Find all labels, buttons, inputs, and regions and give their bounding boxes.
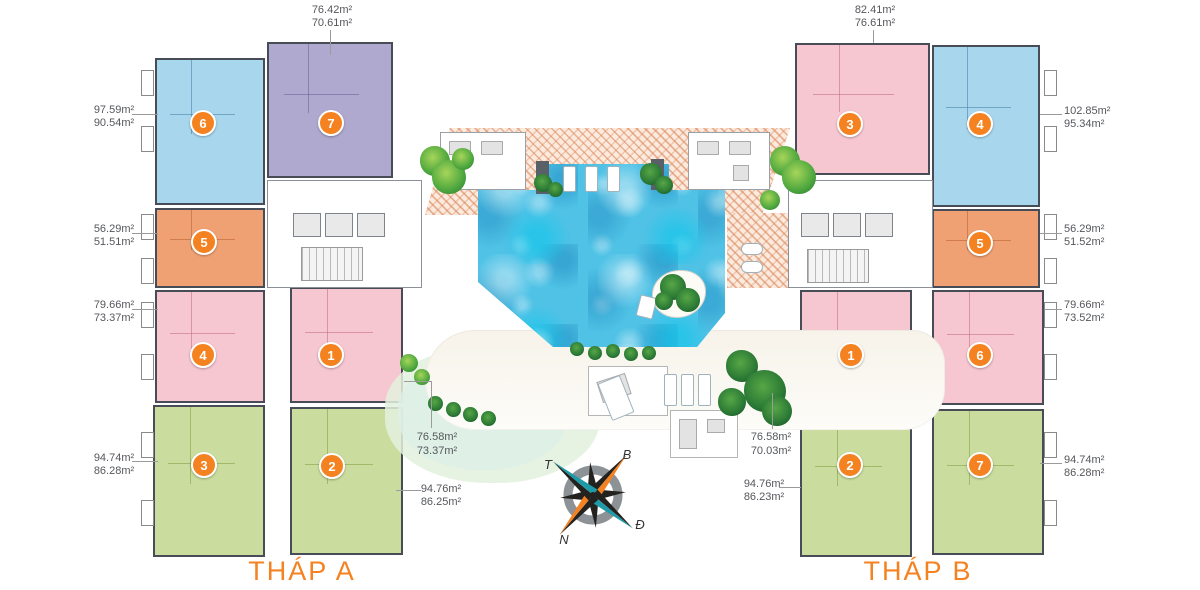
area-label-a3: 94.74m²86.28m² [74,452,154,477]
tree-icon [481,411,496,426]
pool-lounger [585,166,598,192]
compass-north-letter: B [623,447,632,462]
tower-a-title: THÁP A [222,556,382,587]
balcony [141,70,154,96]
area-label-b2: 94.76m²86.23m² [724,478,804,503]
tower-a-unit-1 [290,287,403,403]
tower-b-unit-7 [932,409,1044,555]
balcony [1044,70,1057,96]
tree-icon [452,148,474,170]
unit-badge: 5 [191,229,217,255]
tree-icon [446,402,461,417]
tree-icon [642,346,656,360]
area-label-b1: 76.58m²70.03m² [731,430,811,458]
tower-a-core [267,180,422,288]
balcony [141,500,154,526]
tree-icon [548,182,563,197]
tower-b-unit-3 [795,43,930,175]
palm-tree-icon [676,288,700,312]
unit-badge: 2 [319,453,345,479]
compass-east-letter: Đ [635,517,645,532]
area-label-b6: 79.66m²73.52m² [1064,299,1144,324]
tree-icon [655,176,673,194]
unit-badge: 5 [967,230,993,256]
floor-plan: 6 7 5 4 1 3 2 3 4 5 1 6 2 7 97.59m²90.54… [0,0,1200,590]
palm-tree-icon [718,388,746,416]
balcony [1044,126,1057,152]
unit-badge: 1 [838,342,864,368]
deck-lounger [698,374,711,406]
unit-badge: 6 [967,342,993,368]
area-label-a7: 76.42m²70.61m² [292,4,372,29]
area-label-b3: 82.41m²76.61m² [835,4,915,29]
unit-badge: 1 [318,342,344,368]
clubhouse [670,410,738,458]
compass-west-letter: T [544,457,553,472]
area-label-a1: 76.58m²73.37m² [397,430,477,458]
unit-badge: 7 [967,452,993,478]
swim-up-bar-stool [741,243,763,255]
balcony [1044,302,1057,328]
amenity-room [688,132,770,190]
deck-lounger [681,374,694,406]
unit-badge: 6 [190,110,216,136]
tree-icon [414,369,430,385]
tree-icon [760,190,780,210]
palm-tree-icon [655,292,673,310]
unit-badge: 7 [318,110,344,136]
area-label-b7: 94.74m²86.28m² [1064,454,1144,479]
balcony [1044,500,1057,526]
tree-icon [588,346,602,360]
deck-lounger [664,374,677,406]
area-label-b4: 102.85m²95.34m² [1064,105,1144,130]
unit-badge: 4 [967,111,993,137]
tower-b-core [788,180,933,288]
balcony [141,258,154,284]
tree-icon [624,347,638,361]
balcony [1044,214,1057,240]
area-label-a4: 79.66m²73.37m² [74,299,154,324]
swimming-pool [478,164,725,347]
unit-badge: 2 [837,452,863,478]
compass-south-letter: N [559,532,569,547]
tree-icon [570,342,584,356]
area-label-a5: 56.29m²51.51m² [74,223,154,248]
tower-b-unit-2 [800,409,912,557]
tree-icon [400,354,418,372]
tree-icon [606,344,620,358]
balcony [141,126,154,152]
swim-up-bar-stool [741,261,763,273]
unit-badge: 3 [191,452,217,478]
tree-icon [782,160,816,194]
compass-rose: B Đ N T [534,438,658,562]
pool-lounger [607,166,620,192]
balcony [141,354,154,380]
area-label-a6: 97.59m²90.54m² [74,104,154,129]
tower-b-title: THÁP B [838,556,998,587]
palm-tree-icon [762,396,792,426]
tree-icon [463,407,478,422]
balcony [1044,354,1057,380]
unit-badge: 4 [190,342,216,368]
area-label-a2: 94.76m²86.25m² [401,483,481,508]
tower-a-unit-3 [153,405,265,557]
balcony [1044,432,1057,458]
area-label-b5: 56.29m²51.52m² [1064,223,1144,248]
unit-badge: 3 [837,111,863,137]
balcony [1044,258,1057,284]
pool-lounger [563,166,576,192]
